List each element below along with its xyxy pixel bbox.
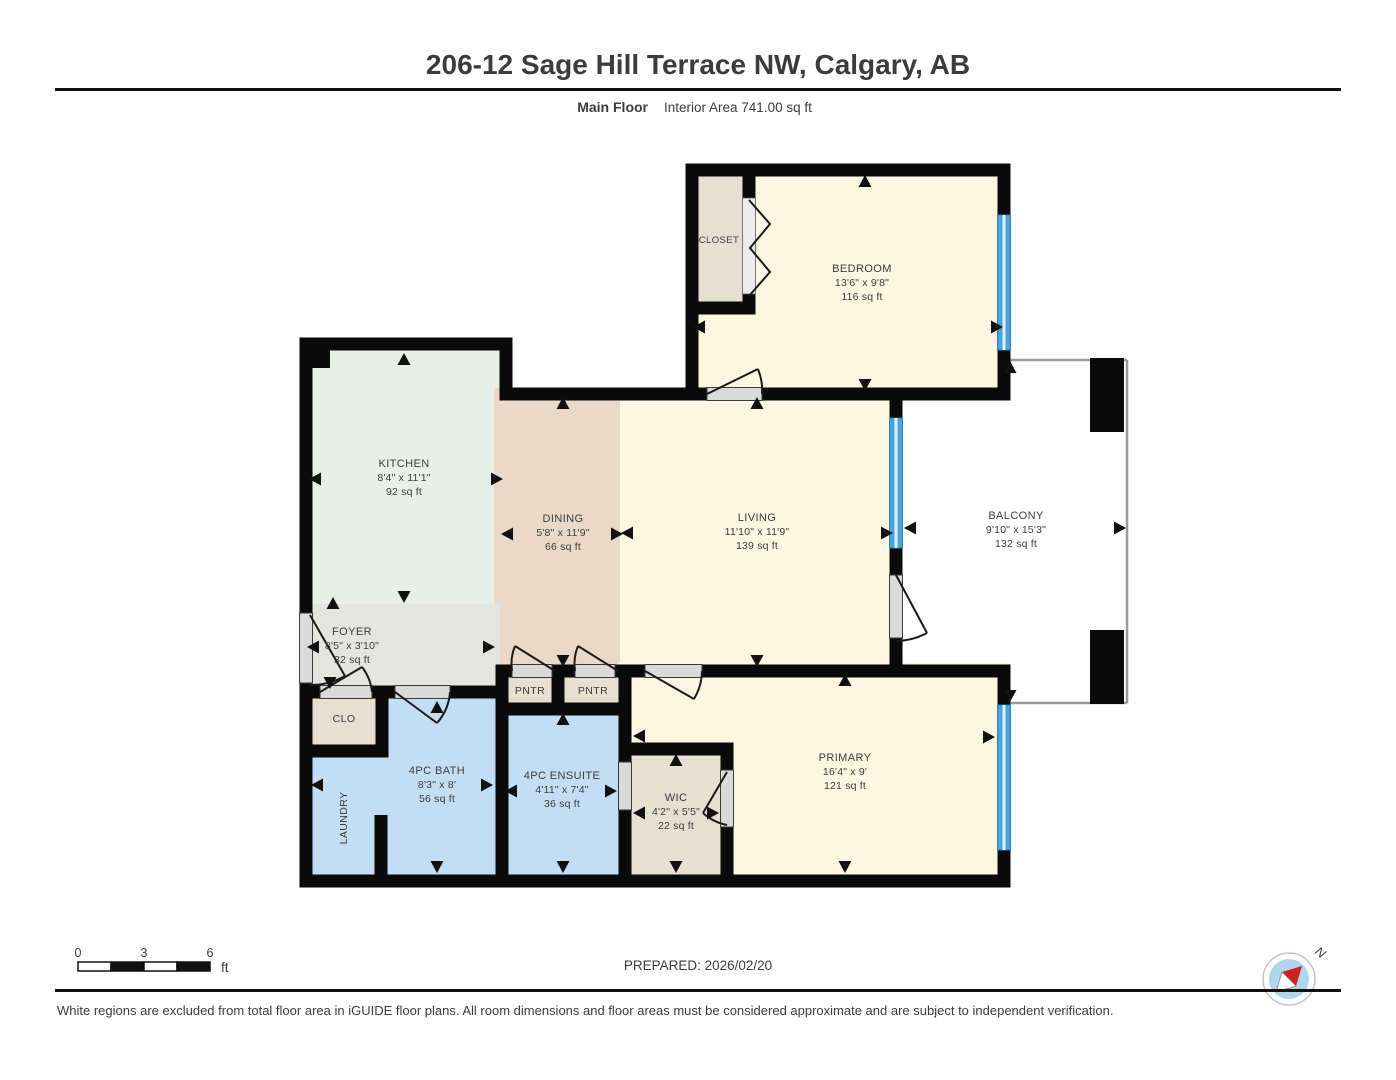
scale-tick-0: 0: [75, 946, 82, 960]
bedroom-name: BEDROOM: [832, 263, 892, 275]
dining-area: 66 sq ft: [545, 541, 581, 553]
foyer-name: FOYER: [332, 626, 372, 638]
compass-north-label: N: [1312, 944, 1329, 962]
kitchen-area: 92 sq ft: [386, 486, 422, 498]
prepared-date: PREPARED: 2026/02/20: [624, 958, 772, 973]
scale-unit-label: ft: [221, 960, 229, 975]
room-fills: [300, 164, 1010, 887]
ensuite-wic-opening: [619, 762, 632, 810]
foyer-dims: 8'5" x 3'10": [325, 640, 379, 652]
bedroom-area: 116 sq ft: [841, 291, 882, 303]
pantry2-label: PNTR: [578, 685, 608, 697]
bath-name: 4PC BATH: [409, 765, 465, 777]
scale-segment-3: [144, 962, 177, 971]
balcony-label: BALCONY 9'10" x 15'3" 132 sq ft: [986, 510, 1046, 550]
compass-icon: N: [1263, 944, 1329, 1005]
balcony-name: BALCONY: [988, 510, 1044, 522]
closet-bifold-sill: [743, 198, 756, 294]
bath-dims: 8'3" x 8': [418, 779, 456, 791]
header-divider: [55, 88, 1341, 91]
kitchen-corner-notch: [300, 338, 330, 368]
wic-dims: 4'2" x 5'5": [652, 806, 700, 818]
interior-area-label: Interior Area 741.00 sq ft: [664, 100, 812, 115]
living-dims: 11'10" x 11'9": [725, 526, 790, 538]
ensuite-dims: 4'11" x 7'4": [535, 784, 588, 796]
balcony-area: 132 sq ft: [995, 538, 1037, 550]
disclaimer-text: White regions are excluded from total fl…: [57, 1003, 1113, 1018]
scale-tick-6: 6: [207, 946, 214, 960]
bedroom-dims: 13'6" x 9'8": [835, 277, 889, 289]
kitchen-name: KITCHEN: [378, 458, 429, 470]
wic-name: WIC: [665, 792, 688, 804]
primary-dims: 16'4" x 9': [823, 766, 867, 778]
living-name: LIVING: [738, 512, 776, 524]
wic-area: 22 sq ft: [658, 820, 694, 832]
primary-label: PRIMARY 16'4" x 9' 121 sq ft: [819, 752, 872, 792]
closet-label: CLOSET: [699, 235, 739, 246]
balcony-pillar-bottom: [1090, 630, 1124, 704]
primary-name: PRIMARY: [819, 752, 872, 764]
ensuite-area: 36 sq ft: [544, 798, 580, 810]
foyer-area: 32 sq ft: [334, 654, 370, 666]
primary-area: 121 sq ft: [824, 780, 866, 792]
scale-segment-2: [111, 962, 144, 971]
bath-door-sill: [395, 686, 450, 699]
floor-plan-canvas: 206-12 Sage Hill Terrace NW, Calgary, AB…: [0, 0, 1396, 1080]
scale-tick-3: 3: [141, 946, 148, 960]
bath-area: 56 sq ft: [419, 793, 455, 805]
kitchen-dims: 8'4" x 11'1": [377, 472, 430, 484]
scale-bar: 0 3 6 ft: [75, 946, 229, 975]
dining-name: DINING: [543, 513, 584, 525]
floor-label: Main Floor: [577, 99, 648, 115]
scale-segment-1: [78, 962, 111, 971]
clo-label: CLO: [333, 713, 356, 725]
laundry-label: LAUNDRY: [338, 792, 350, 845]
floor-plan-page: 206-12 Sage Hill Terrace NW, Calgary, AB…: [0, 0, 1396, 1080]
balcony-dims: 9'10" x 15'3": [986, 524, 1046, 536]
balcony-pillar-top: [1090, 358, 1124, 432]
ensuite-name: 4PC ENSUITE: [524, 770, 601, 782]
dining-dims: 5'8" x 11'9": [536, 527, 589, 539]
scale-segment-4: [177, 962, 210, 971]
page-title: 206-12 Sage Hill Terrace NW, Calgary, AB: [426, 49, 970, 80]
living-area: 139 sq ft: [736, 540, 778, 552]
pantry1-label: PNTR: [515, 685, 545, 697]
footer-divider: [55, 989, 1341, 992]
